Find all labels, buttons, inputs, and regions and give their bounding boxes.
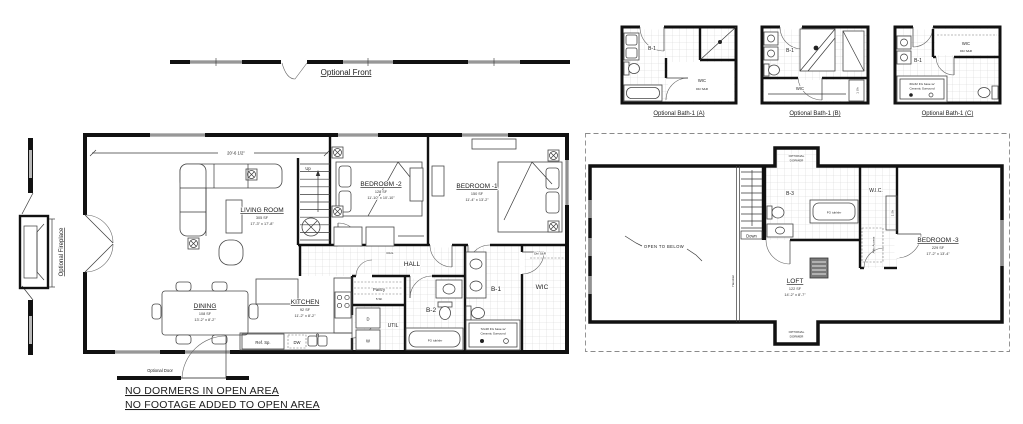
stairs-up-label: Up: [305, 166, 311, 171]
hall-label: HALL: [404, 261, 421, 268]
floor-plan-drawing: Optional Front Optional Fireplace: [0, 0, 1023, 424]
shower-label-2: Ceramic Surround: [480, 332, 505, 336]
note-line-1: NO DORMERS IN OPEN AREA: [125, 385, 279, 397]
optional-dormer-note-top-2: DORMER: [790, 159, 805, 163]
coffee-table: [226, 200, 242, 233]
fireplace-window-lower: [29, 316, 32, 344]
plan-notes: NO DORMERS IN OPEN AREA NO FOOTAGE ADDED…: [125, 385, 320, 411]
chase-grille: [810, 258, 828, 278]
bath-a-room-label: B-1: [648, 46, 656, 52]
dimension-line: 20'-6 1/2": [90, 150, 330, 156]
bath-c-title: Optional Bath-1 (C): [922, 111, 974, 117]
bedroom1-label: BEDROOM -1: [456, 183, 498, 190]
optional-dormer-note-top-1: OPTIONAL: [789, 154, 805, 158]
vanity-sink: [767, 224, 793, 237]
vanity-sink: [436, 280, 462, 298]
bedroom-3: BEDROOM -3 229 SF 17'-2" x 13'-4": [917, 237, 959, 256]
closet-unit: [366, 227, 394, 246]
optional-fireplace-label: Optional Fireplace: [59, 227, 65, 276]
floor-plan-sheet: Optional Front Optional Fireplace: [0, 0, 1023, 424]
living-room: LIVING ROOM 305 SF 17'-3" x 17'-8": [180, 164, 284, 265]
bath-a-wic-note: Dbl S&R: [696, 87, 709, 91]
loft-label: LOFT: [787, 278, 804, 285]
stairs-up: Up: [300, 164, 330, 240]
range: [335, 292, 351, 318]
open-to-below-label: OPEN TO BELOW: [644, 244, 684, 249]
util-label: UTIL: [388, 323, 399, 329]
ceiling-fan-icon: [548, 150, 559, 161]
one-shelf-label: 1 Sh: [891, 210, 895, 217]
note-line-2: NO FOOTAGE ADDED TO OPEN AREA: [125, 399, 320, 411]
bath-b-wic-label: WIC: [796, 86, 804, 91]
fireplace-window-upper: [29, 150, 32, 178]
ref-space-label: Ref. Sp.: [255, 340, 270, 345]
bath-c-wic-note: Dbl S&R: [960, 49, 973, 53]
bath-option-a: B-1 WIC Dbl S&R Optional Bath-1 (A): [622, 27, 736, 117]
tub-label: FG tub/shr: [428, 339, 443, 343]
dining-label: DINING: [194, 303, 217, 310]
stairs-down: Down: [741, 166, 763, 240]
overall-dimension: 20'-6 1/2": [227, 151, 245, 156]
nightstand: [432, 166, 444, 196]
stairs-down-label: Down: [746, 234, 757, 239]
pantry: Pantry 5 Sh: [354, 282, 403, 301]
shower-label-1: 72x48 FG base w/: [480, 327, 505, 331]
bedroom2-area: 128 SF: [375, 190, 388, 194]
ceiling-fan-icon: [188, 238, 199, 249]
optional-door-label: Optional Door: [147, 368, 173, 373]
shower: [800, 29, 835, 71]
pantry-label: Pantry: [373, 287, 386, 292]
firebox: [24, 226, 37, 278]
dining-chair: [176, 282, 191, 291]
wic-shelf-note: Dbl S&R: [534, 252, 547, 256]
bedroom3-label: BEDROOM -3: [917, 237, 959, 244]
front-double-door: [85, 215, 113, 272]
washer-label: W: [366, 339, 370, 344]
bath-c-shower-label-2: Ceramic Surround: [909, 87, 934, 91]
first-floor-plan: 20'-6 1/2": [85, 135, 567, 352]
dryer-label: D: [366, 317, 369, 322]
linen-closet: [843, 31, 864, 71]
bath-c-shower-label-1: 60x32 FG base w/: [909, 82, 934, 86]
dining-chair: [176, 335, 191, 344]
dining-chair: [152, 304, 161, 319]
wic-label: W.I.C.: [869, 188, 883, 194]
loft-dims: 14'-2" x 8'-7": [784, 293, 806, 297]
bedroom2-dims: 11'-10" x 10'-10": [367, 196, 395, 200]
bedroom1-area: 150 SF: [471, 192, 484, 196]
dresser: [410, 168, 423, 201]
bath-option-c: B-1 WIC Dbl S&R 60x32 FG base w/ Ceramic…: [895, 27, 1000, 117]
attic-access-label: Attic Access: [872, 236, 876, 253]
closet-unit: [334, 227, 362, 246]
dining-dims: 13'-2" x 8'-2": [194, 318, 216, 322]
bath-b-room-label: B-1: [786, 48, 794, 54]
accent-chair: [219, 240, 243, 265]
handrail-label: Handrail: [731, 275, 735, 287]
bath-c-wic-label: WIC: [962, 41, 970, 46]
bedroom-1: BEDROOM -1 150 SF 11'-4" x 13'-2": [432, 139, 562, 232]
bath-b-wic-note: 1 Sh: [856, 87, 860, 94]
elevation-door-swing: [282, 63, 307, 79]
loft-area: 122 SF: [789, 287, 802, 291]
dining-chair: [212, 282, 227, 291]
kitchen-label: KITCHEN: [291, 299, 320, 306]
toilet: [764, 64, 780, 76]
ceiling-fan-icon: [332, 147, 343, 158]
optional-dormer-note-bottom-2: DORMER: [790, 335, 805, 339]
bath-b-title: Optional Bath-1 (B): [789, 111, 840, 117]
bedroom1-dims: 11'-4" x 13'-2": [465, 198, 489, 202]
bedroom2-label: BEDROOM -2: [360, 181, 402, 188]
optional-front-elevation: Optional Front: [170, 58, 570, 79]
dishwasher-label: DW: [294, 340, 301, 345]
kitchen-dims: 11'-2" x 8'-2": [295, 314, 317, 318]
bathtub: FG tub/shr: [810, 200, 858, 223]
optional-dormer-note-bottom-1: OPTIONAL: [789, 330, 805, 334]
vanity-sink: [624, 33, 639, 60]
kitchen-area: 92 SF: [300, 308, 311, 312]
toilet: [624, 62, 640, 75]
shower: 60x32 FG base w/ Ceramic Surround: [897, 76, 947, 102]
bath2-label: B-2: [426, 307, 437, 314]
bedroom3-dims: 17'-2" x 13'-4": [926, 252, 950, 256]
second-floor-plan: OPTIONAL DORMER OPTIONAL DORMER Handrail…: [586, 134, 1010, 352]
shower: 72x48 FG base w/ Ceramic Surround: [466, 320, 520, 350]
bathtub: FG tub/shr: [406, 328, 463, 350]
pantry-shelves-label: 5 Sh: [376, 297, 383, 301]
bath1-label: B-1: [491, 286, 502, 293]
bed: [336, 162, 422, 216]
bedroom-2: BEDROOM -2 128 SF 11'-10" x 10'-10" RAIL: [332, 147, 424, 255]
loft-railing: Handrail: [731, 166, 740, 322]
bath-a-title: Optional Bath-1 (A): [653, 111, 704, 117]
sofa-chaise: [180, 164, 206, 236]
dining-chair: [249, 304, 258, 319]
bath-option-b: B-1 WIC 1 Sh Optional Bath-1 (B): [762, 27, 868, 117]
optional-front-label: Optional Front: [321, 68, 372, 77]
living-room-label: LIVING ROOM: [240, 207, 283, 214]
living-room-dims: 17'-3" x 17'-8": [250, 222, 274, 226]
dresser: [472, 139, 516, 149]
bath-c-room-label: B-1: [914, 58, 922, 64]
open-to-below-annotation: OPEN TO BELOW: [625, 236, 702, 261]
wic-label: WIC: [536, 284, 549, 291]
bath3-label: B-3: [786, 191, 794, 197]
rail-label: RAIL: [387, 251, 394, 255]
dining-area: 108 SF: [199, 312, 212, 316]
toilet: [466, 306, 485, 320]
bathtub: [624, 85, 662, 101]
optional-fireplace-detail: Optional Fireplace: [20, 138, 65, 355]
ceiling-fan-icon: [548, 221, 559, 232]
kitchen-sink: [308, 334, 327, 346]
toilet: [767, 206, 784, 219]
bath-a-wic-label: WIC: [698, 78, 706, 83]
living-room-area: 305 SF: [256, 216, 269, 220]
ceiling-fan-icon: [332, 206, 343, 217]
loft-tub-label: FG tub/shr: [827, 211, 842, 215]
bedroom3-area: 229 SF: [932, 246, 945, 250]
